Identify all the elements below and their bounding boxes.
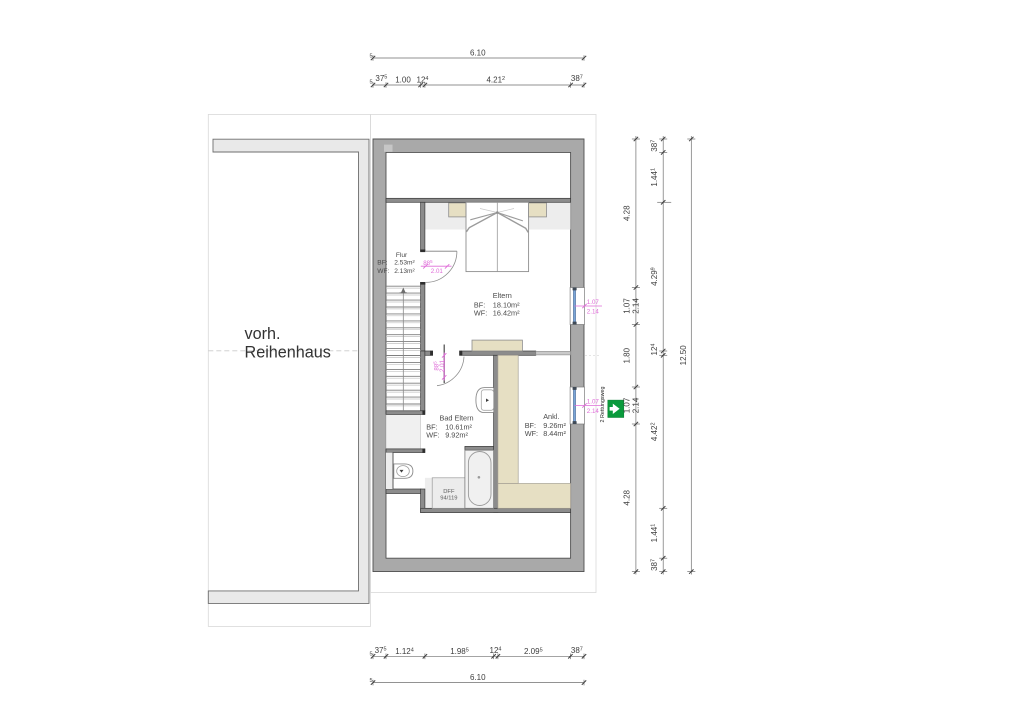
svg-text:DFF: DFF [443, 489, 455, 495]
svg-text:6.10: 6.10 [470, 673, 486, 682]
svg-text:12.50: 12.50 [679, 345, 688, 366]
svg-text:2.14: 2.14 [587, 308, 600, 315]
svg-text:WF:: WF: [377, 268, 389, 275]
svg-text:WF:: WF: [426, 431, 439, 440]
svg-text:BF:: BF: [377, 260, 387, 267]
svg-text:WF:: WF: [525, 429, 538, 438]
svg-text:2.01: 2.01 [431, 268, 444, 275]
svg-text:1.07: 1.07 [587, 299, 600, 306]
svg-text:2.13m²: 2.13m² [394, 268, 415, 275]
svg-text:1.07: 1.07 [623, 397, 632, 413]
svg-text:16.42m²: 16.42m² [493, 309, 520, 318]
svg-text:1.00: 1.00 [395, 75, 411, 84]
svg-text:1.07: 1.07 [587, 398, 600, 405]
svg-text:2.14: 2.14 [587, 408, 600, 415]
svg-text:Eltern: Eltern [493, 291, 512, 300]
svg-text:Ankl.: Ankl. [543, 412, 559, 421]
svg-text:vorh.: vorh. [245, 325, 281, 343]
svg-text:1.07: 1.07 [623, 298, 632, 314]
svg-text:2.53m²: 2.53m² [394, 260, 415, 267]
svg-text:5: 5 [369, 652, 372, 658]
svg-text:Reihenhaus: Reihenhaus [245, 343, 331, 361]
svg-text:2.01: 2.01 [439, 359, 446, 372]
svg-text:2.14: 2.14 [632, 397, 641, 413]
svg-text:6.10: 6.10 [470, 49, 486, 58]
svg-text:Flur: Flur [396, 252, 408, 259]
svg-text:5: 5 [369, 80, 372, 86]
svg-text:Bad Eltern: Bad Eltern [440, 414, 474, 423]
svg-text:WF:: WF: [474, 309, 487, 318]
svg-text:9.92m²: 9.92m² [445, 431, 468, 440]
svg-text:94/119: 94/119 [440, 496, 457, 502]
svg-text:5: 5 [369, 678, 372, 684]
svg-text:5: 5 [369, 53, 372, 59]
svg-text:1.80: 1.80 [623, 347, 632, 363]
svg-text:2 Rettungsweg: 2 Rettungsweg [600, 387, 606, 423]
svg-text:4.28: 4.28 [623, 489, 632, 505]
svg-text:8.44m²: 8.44m² [543, 429, 566, 438]
svg-text:4.28: 4.28 [623, 205, 632, 221]
svg-text:2.14: 2.14 [632, 298, 641, 314]
